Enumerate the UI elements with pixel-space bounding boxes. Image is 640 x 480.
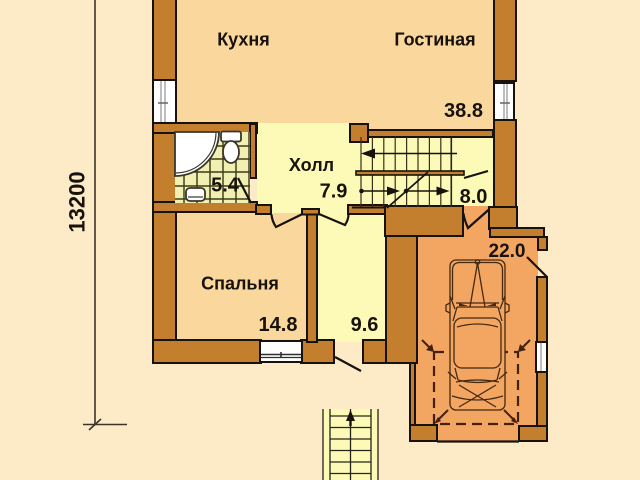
svg-text:8.0: 8.0 xyxy=(460,186,488,208)
svg-text:5.4: 5.4 xyxy=(211,175,240,197)
svg-text:38.8: 38.8 xyxy=(444,100,483,122)
svg-text:13200: 13200 xyxy=(65,171,90,232)
svg-text:Спальня: Спальня xyxy=(201,274,279,294)
svg-text:22.0: 22.0 xyxy=(489,241,526,262)
svg-text:9.6: 9.6 xyxy=(351,314,379,336)
svg-text:7.9: 7.9 xyxy=(320,181,348,203)
svg-text:Кухня: Кухня xyxy=(217,30,270,50)
svg-text:Холл: Холл xyxy=(289,155,334,175)
svg-text:Гостиная: Гостиная xyxy=(394,30,475,50)
svg-text:14.8: 14.8 xyxy=(259,314,298,336)
